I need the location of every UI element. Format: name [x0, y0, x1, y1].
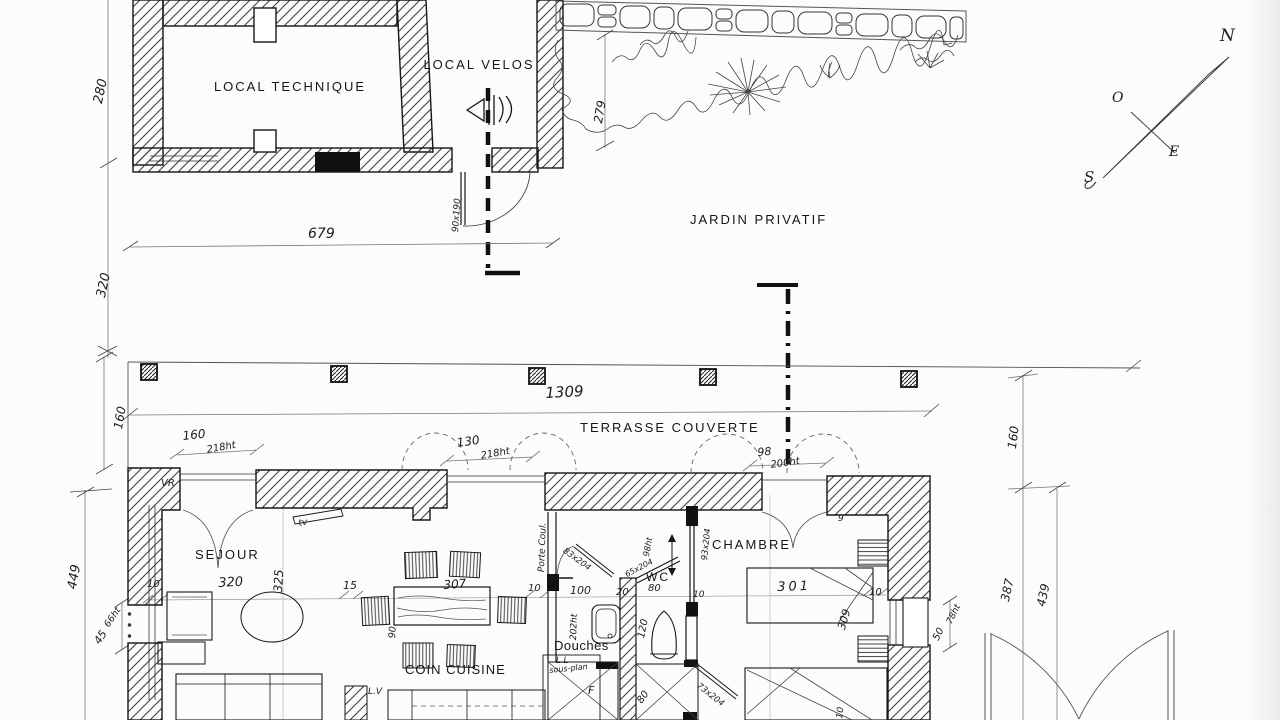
compass-n-label: N: [1220, 28, 1235, 45]
dim-bed-9: 9: [838, 515, 844, 524]
dim-douches-w: 100: [570, 585, 591, 596]
room-label-chambre: CHAMBRE: [712, 538, 791, 551]
dim-table-len: 307: [443, 577, 467, 591]
dim-terrace-depth-right: 160: [1006, 425, 1021, 449]
right-window-sill: [903, 598, 928, 647]
dim-chain-15: 15: [343, 580, 357, 591]
dim-sejour-width: 320: [218, 576, 243, 590]
dim-table-w: 90: [388, 626, 398, 639]
french-doors-detail: [985, 630, 1174, 720]
dim-entry: 98: [757, 446, 772, 458]
vegetation: [554, 30, 958, 132]
dim-chambre-w: 301: [777, 580, 811, 594]
floor-plan-page: LOCAL TECHNIQUE LOCAL VELOS JARDIN PRIVA…: [0, 0, 1280, 720]
room-label-douches: Douches: [554, 639, 609, 652]
porte-coul-label: Porte Coul.: [538, 523, 549, 573]
dim-chain-10c: 10: [693, 591, 704, 600]
main-house-walls: [128, 468, 930, 720]
dim-garden-depth: 279: [592, 99, 608, 124]
dim-terrace-width: 1309: [545, 384, 584, 401]
annex-door-swing-arc: [461, 172, 530, 226]
room-label-local-velos: LOCAL VELOS: [413, 58, 545, 71]
dim-sejour-depth: 325: [272, 569, 285, 593]
dim-annex-width: 679: [308, 227, 335, 241]
floor-plan-drawing: [0, 0, 1280, 720]
terrace-label: TERRASSE COUVERTE: [580, 421, 760, 434]
dim-douches-ht: 202ht: [570, 614, 580, 641]
compass-e-label: E: [1169, 145, 1179, 159]
toilet: [650, 611, 678, 659]
dim-win2: 130: [456, 434, 480, 449]
compass-s-label: S: [1084, 170, 1094, 185]
dim-win1: 160: [182, 428, 206, 442]
vr-label: VR: [161, 479, 175, 489]
stone-wall: [556, 1, 966, 42]
north-compass: [1085, 57, 1229, 188]
shower-f-label: F: [588, 685, 594, 696]
room-label-coin-cuisine: COIN CUISINE: [405, 663, 506, 676]
room-label-wc: WC: [646, 571, 670, 583]
entry-path-line: [757, 285, 798, 470]
dim-wall-20: 20: [616, 588, 629, 598]
dim-bed-10: 10: [836, 707, 847, 720]
tv-label: tv: [298, 518, 308, 528]
garden-label: JARDIN PRIVATIF: [690, 213, 827, 226]
dim-chain-10d: 10: [869, 588, 882, 598]
compass-o-label: O: [1112, 91, 1123, 105]
dim-chain-10a: 10: [147, 580, 160, 590]
dim-chain-10b: 10: [528, 584, 541, 594]
lv-label: L.V: [368, 688, 382, 697]
dim-terrace-depth-left: 160: [112, 405, 128, 430]
dim-wc-w: 80: [648, 584, 661, 594]
covered-terrace-posts: [141, 364, 917, 387]
room-label-sejour: SEJOUR: [195, 548, 260, 561]
room-label-local-technique: LOCAL TECHNIQUE: [205, 80, 375, 93]
